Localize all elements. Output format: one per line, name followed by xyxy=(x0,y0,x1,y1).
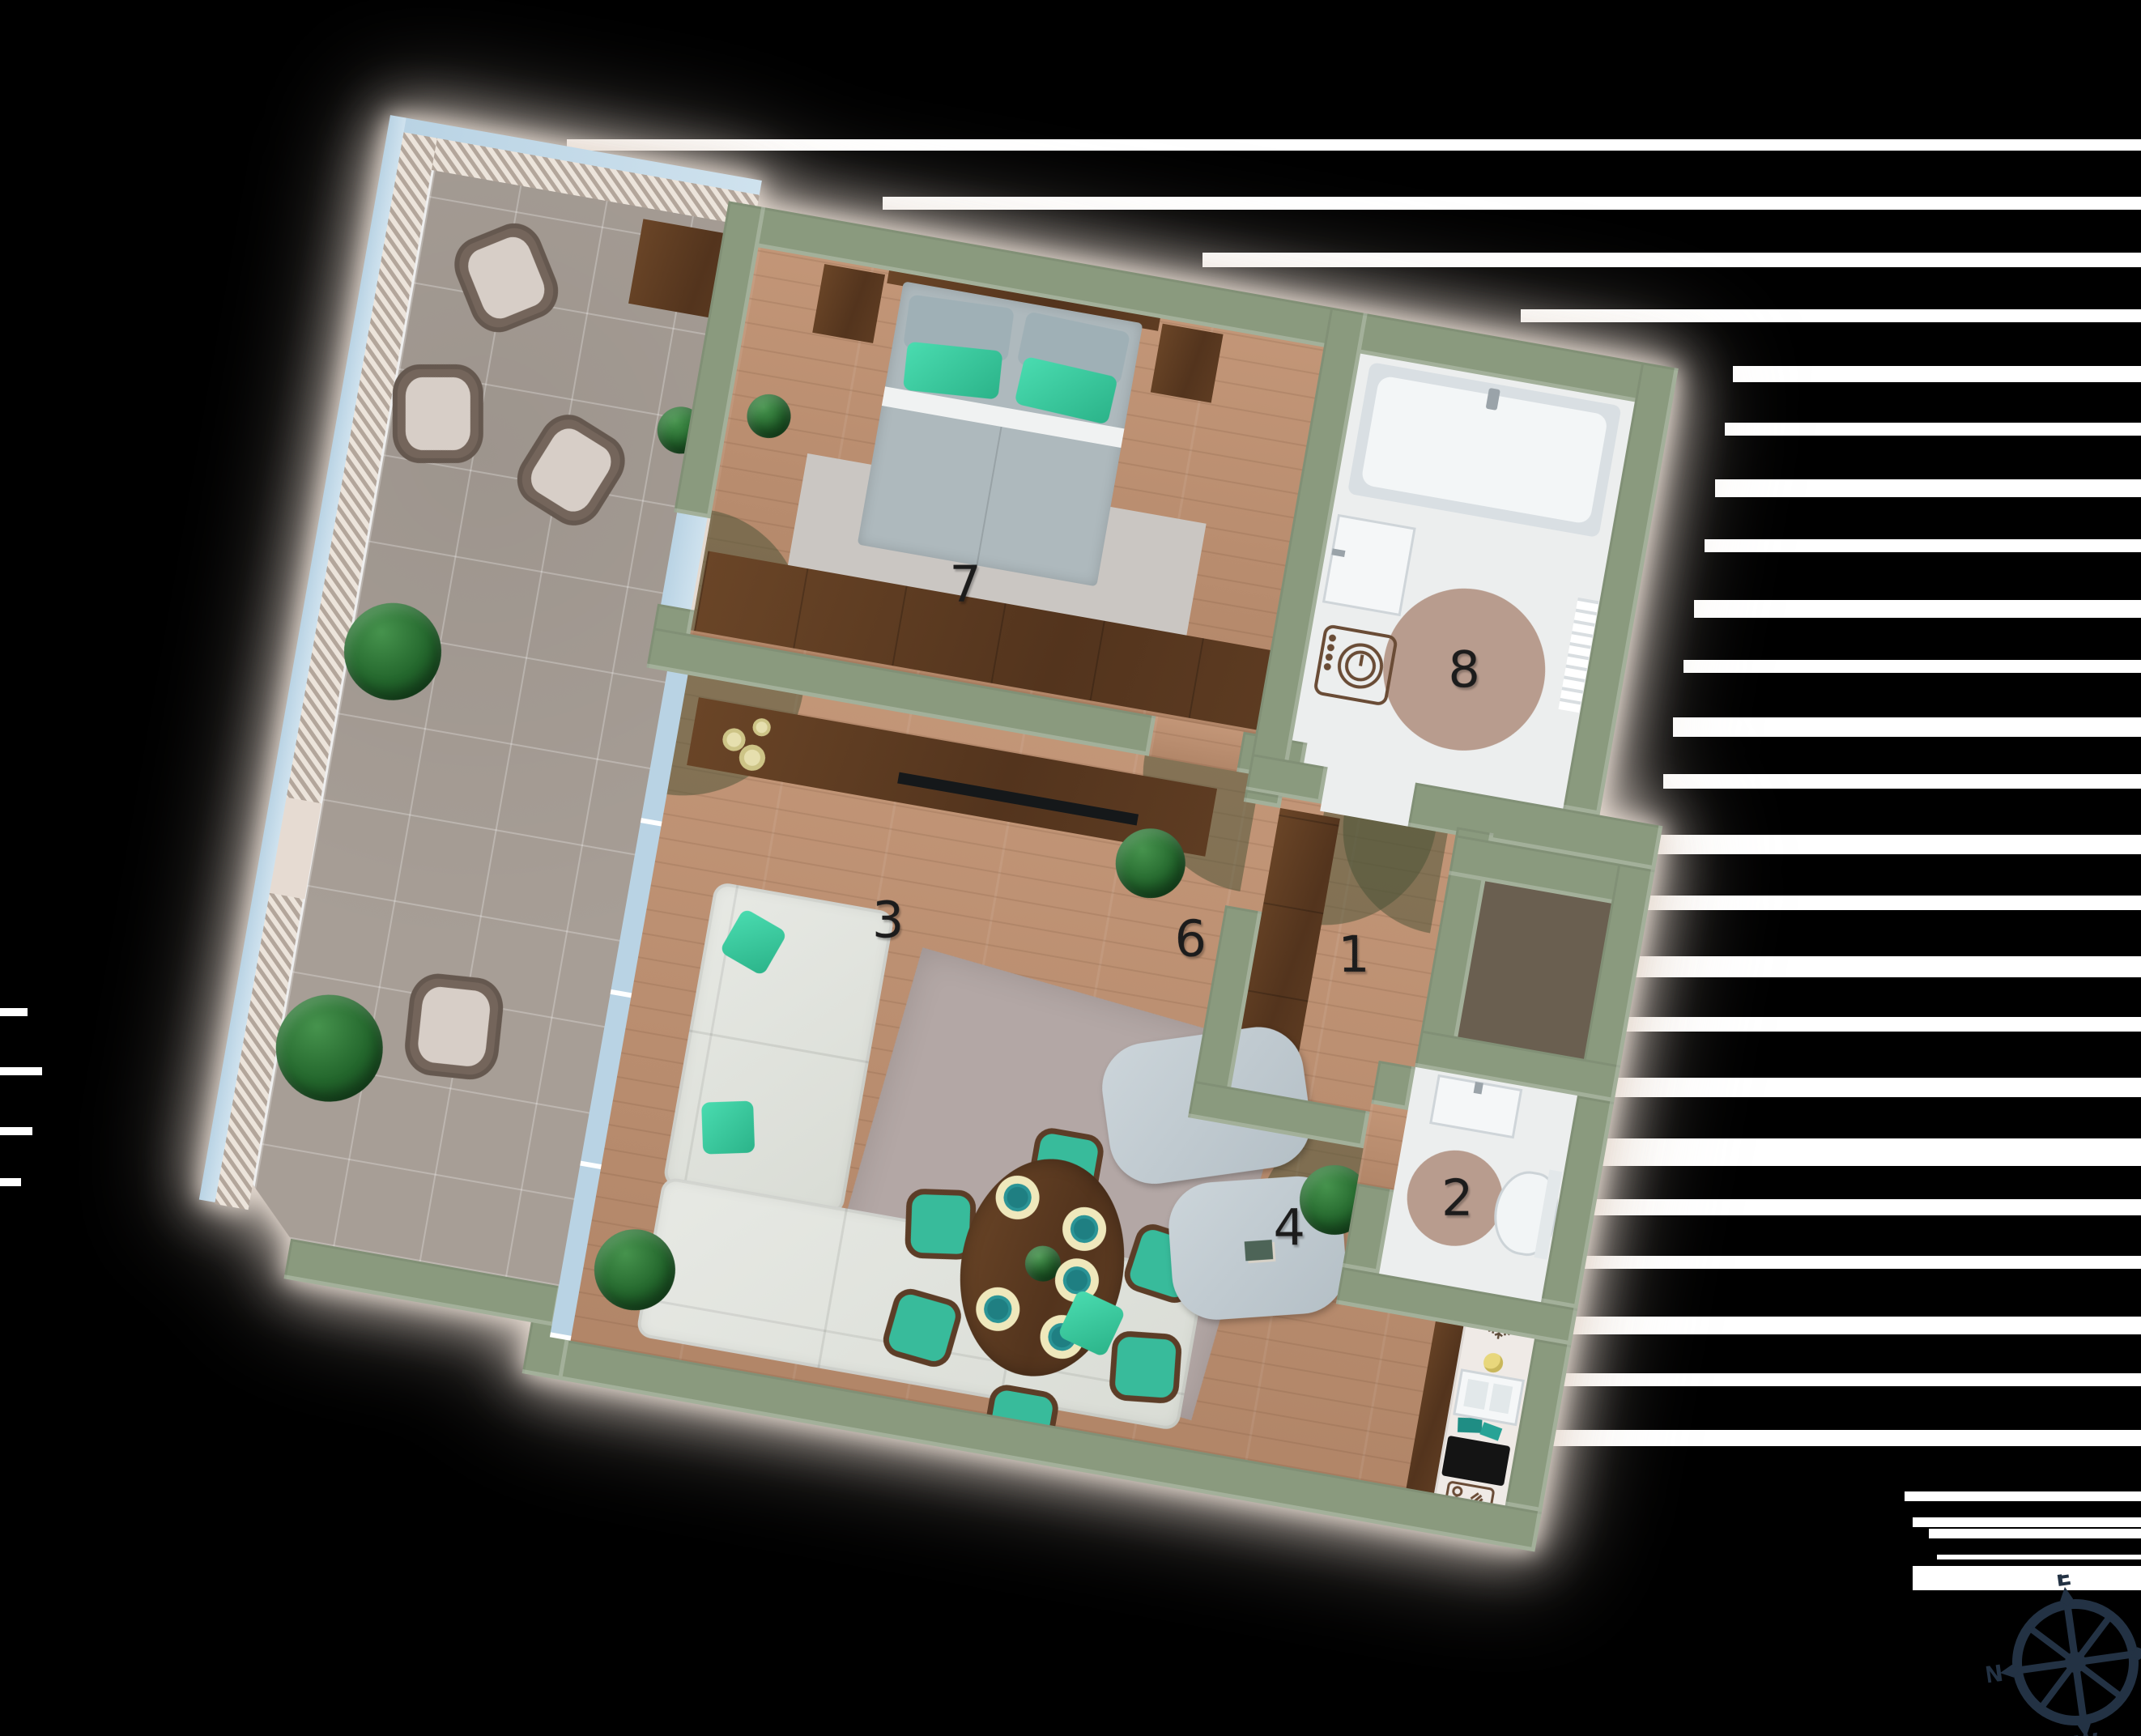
glitch-stripe xyxy=(1733,366,2141,382)
glitch-stripe xyxy=(1598,1138,2141,1166)
glitch-stripe xyxy=(1913,1517,2141,1527)
glitch-stripe xyxy=(1588,1199,2141,1215)
glitch-stripe xyxy=(1556,1373,2141,1386)
glitch-stripe xyxy=(0,1127,32,1135)
glitch-stripe xyxy=(1567,1317,2141,1334)
glitch-stripe xyxy=(1577,1256,2141,1269)
wall-wc-west-a xyxy=(1371,1061,1415,1110)
nightstand-right xyxy=(1151,324,1224,403)
cooktop xyxy=(1441,1436,1510,1487)
glitch-stripe xyxy=(1715,479,2141,497)
scene: ❄ xyxy=(0,0,2141,1736)
console-vase xyxy=(751,717,772,738)
room-label-living: 3 xyxy=(872,890,904,949)
compass-letter-bottom: W xyxy=(2072,1728,2101,1736)
glitch-stripe xyxy=(883,197,2141,210)
glitch-stripe xyxy=(1937,1555,2141,1559)
room-label-kitchen: 4 xyxy=(1274,1198,1305,1257)
glitch-stripe xyxy=(1546,1430,2141,1446)
terrace-armchair xyxy=(402,971,506,1082)
room-label-bedroom: 7 xyxy=(949,555,981,614)
glitch-stripe xyxy=(1202,253,2141,267)
room-label-corridor: 6 xyxy=(1175,909,1207,968)
bed-pillow-teal xyxy=(903,342,1003,400)
glitch-stripe xyxy=(1694,600,2141,618)
glitch-stripe xyxy=(1683,660,2141,673)
dining-chair xyxy=(1109,1330,1183,1405)
dish-rack-teal xyxy=(1479,1422,1502,1440)
glitch-stripe xyxy=(1705,539,2141,552)
bed-duvet-crease xyxy=(976,427,1002,566)
glitch-stripe xyxy=(1610,1078,2141,1097)
glitch-stripe xyxy=(1673,717,2141,737)
glitch-stripe xyxy=(1653,835,2141,854)
room-label-bathroom: 8 xyxy=(1448,640,1479,699)
glitch-stripe xyxy=(0,1067,42,1075)
compass-rose-icon: E S W N xyxy=(1975,1562,2141,1736)
glitch-stripe xyxy=(0,1008,28,1016)
glitch-stripe xyxy=(0,1178,21,1186)
nightstand-left xyxy=(812,264,885,343)
room-label-wc: 2 xyxy=(1441,1168,1473,1228)
bathroom-sink xyxy=(1322,514,1416,616)
room-label-hall: 1 xyxy=(1338,925,1369,984)
washing-machine-icon xyxy=(1309,619,1403,713)
glitch-stripe xyxy=(1620,1017,2141,1032)
glitch-stripe xyxy=(1725,423,2141,436)
bed xyxy=(858,281,1143,586)
kettle xyxy=(1482,1351,1505,1374)
glitch-stripe xyxy=(1663,774,2141,789)
glitch-stripe xyxy=(567,139,2141,151)
glitch-stripe xyxy=(1631,956,2141,977)
glitch-stripe xyxy=(1521,309,2141,322)
terrace-armchair xyxy=(393,364,483,463)
glitch-stripe xyxy=(1642,896,2141,910)
glitch-stripe xyxy=(1905,1491,2141,1501)
dish-rack-teal xyxy=(1458,1418,1483,1433)
coffee-table-decor xyxy=(1245,1240,1274,1261)
sofa-pillow-teal xyxy=(701,1100,755,1154)
glitch-stripe xyxy=(1929,1529,2141,1538)
floor-plan: ❄ xyxy=(172,108,1747,1592)
